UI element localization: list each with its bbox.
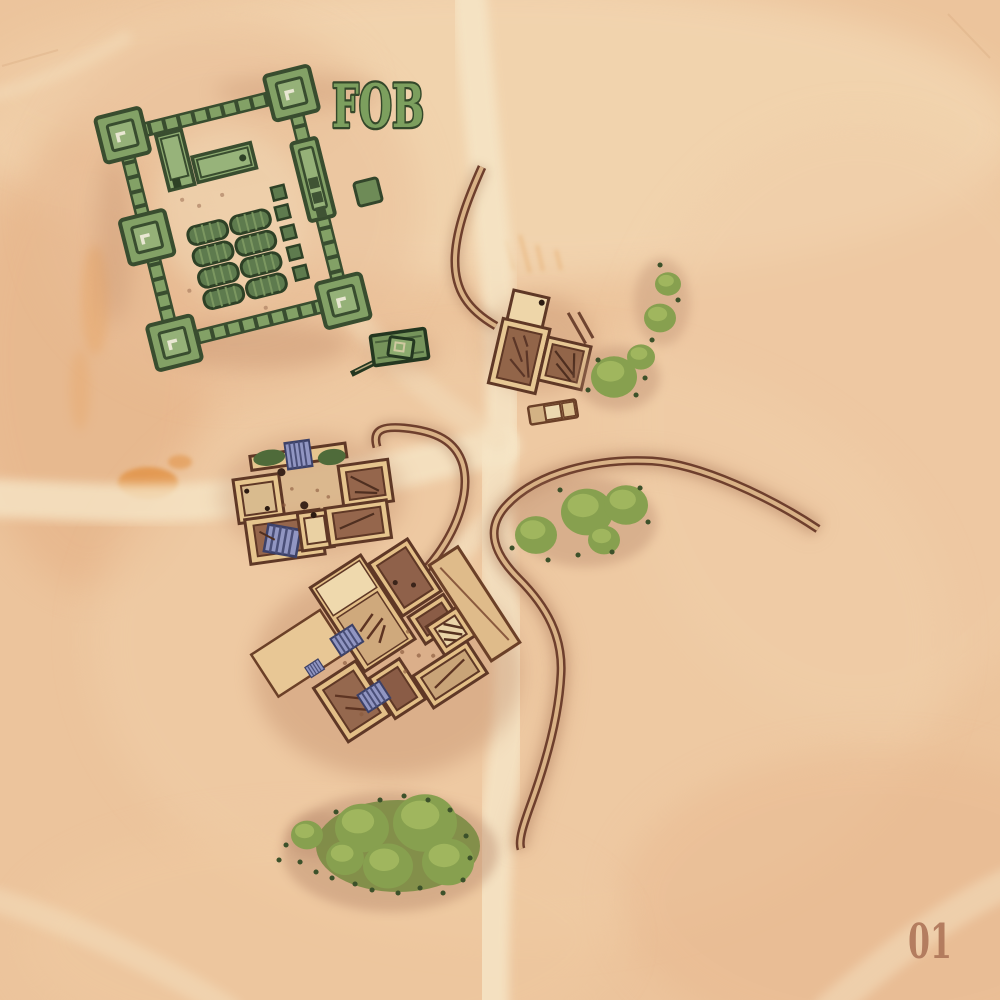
- corner-tower-sw: [147, 315, 203, 371]
- bush: [588, 526, 620, 555]
- bush: [291, 821, 323, 850]
- mid-wall-tower-west: [119, 209, 175, 265]
- orange-streak: [70, 350, 90, 430]
- turret-body: [388, 337, 414, 359]
- bush-stain: [634, 258, 690, 346]
- bush: [655, 272, 681, 295]
- bush: [422, 839, 474, 886]
- truck-cab: [562, 402, 576, 418]
- bush: [604, 485, 648, 525]
- room-floor: [304, 516, 327, 545]
- room-floor: [241, 481, 277, 515]
- corner-tower-nw: [95, 107, 151, 163]
- bush: [644, 304, 676, 333]
- desert-map-svg: FOB: [0, 0, 1000, 1000]
- bush-cluster-center: [512, 477, 657, 567]
- room-floor: [333, 507, 384, 539]
- bush: [326, 841, 364, 875]
- gate-tarp: [284, 440, 312, 469]
- orange-stain: [168, 455, 192, 469]
- tank-turret: [388, 337, 414, 359]
- room-south-east: [325, 500, 392, 546]
- corner-tower-se: [315, 273, 371, 329]
- fob-label: FOB: [332, 72, 424, 142]
- map-canvas[interactable]: FOB: [0, 0, 1000, 1000]
- bush: [515, 516, 557, 554]
- corrugated-roof: [264, 524, 301, 556]
- bush: [363, 844, 413, 889]
- map-sheet-number: 01: [908, 914, 952, 970]
- bush: [627, 344, 655, 369]
- corner-tower-ne: [264, 65, 320, 121]
- fob-guard-post: [353, 177, 382, 206]
